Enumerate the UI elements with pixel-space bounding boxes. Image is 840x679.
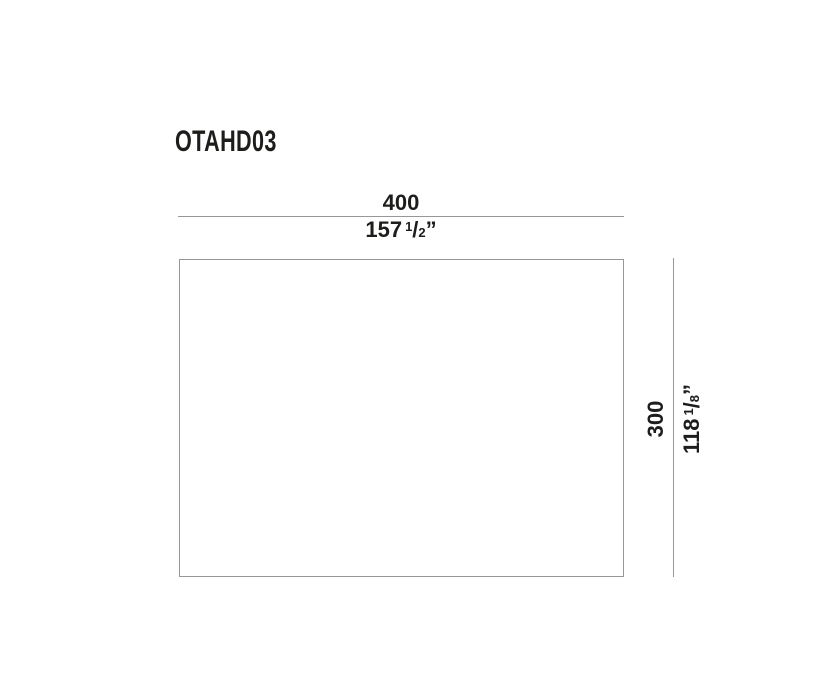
- product-code: OTAHD03: [175, 127, 277, 157]
- height-fraction-denominator: 8: [687, 395, 702, 402]
- height-fraction-numerator: 1: [681, 408, 696, 415]
- plan-view-rectangle: [179, 259, 624, 577]
- width-inches-whole: 157: [365, 217, 402, 242]
- height-inches-whole: 118: [679, 419, 704, 455]
- height-fraction-slash: /: [679, 402, 704, 408]
- height-unit-mark: ”: [679, 384, 704, 395]
- width-fraction-denominator: 2: [418, 225, 425, 240]
- height-mm-label: 300: [645, 401, 667, 438]
- width-unit-mark: ”: [426, 217, 437, 242]
- height-dimension-line: [673, 258, 674, 577]
- height-inches-label: 1181/8”: [681, 384, 703, 454]
- spec-sheet: OTAHD03 400 1571/2” 300 1181/8”: [0, 0, 840, 679]
- width-mm-label: 400: [178, 192, 624, 214]
- width-inches-label: 1571/2”: [178, 219, 624, 241]
